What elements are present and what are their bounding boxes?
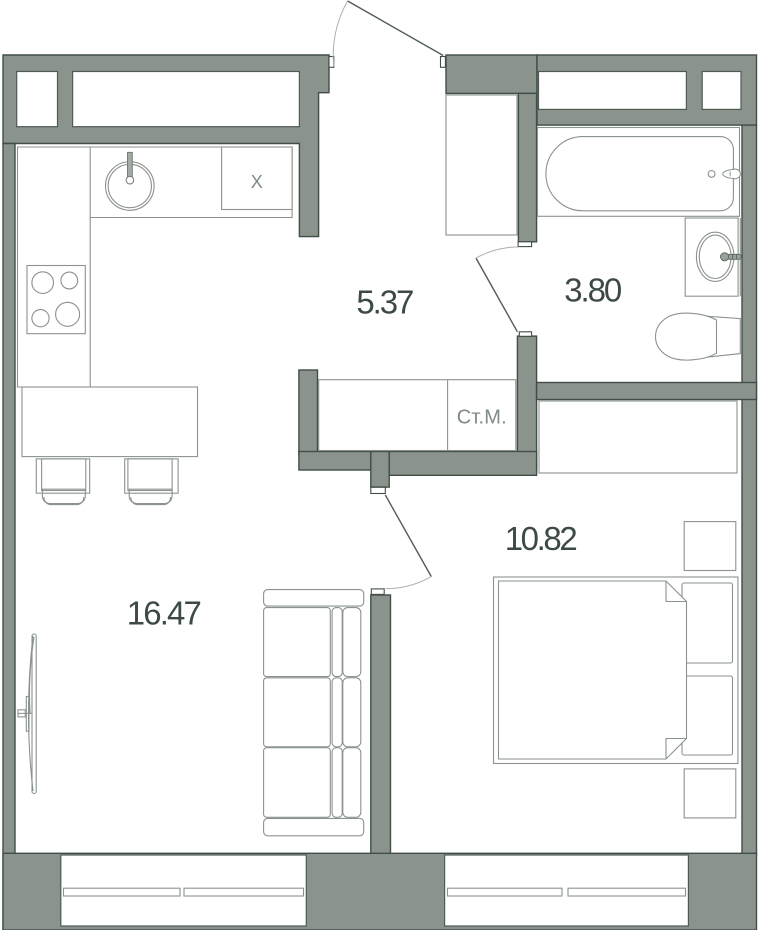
- svg-text:X: X: [251, 172, 263, 192]
- svg-text:16.47: 16.47: [127, 595, 202, 632]
- svg-text:10.82: 10.82: [505, 520, 578, 557]
- svg-text:Ст.М.: Ст.М.: [457, 407, 507, 429]
- svg-text:3.80: 3.80: [564, 272, 622, 309]
- svg-text:5.37: 5.37: [356, 284, 414, 321]
